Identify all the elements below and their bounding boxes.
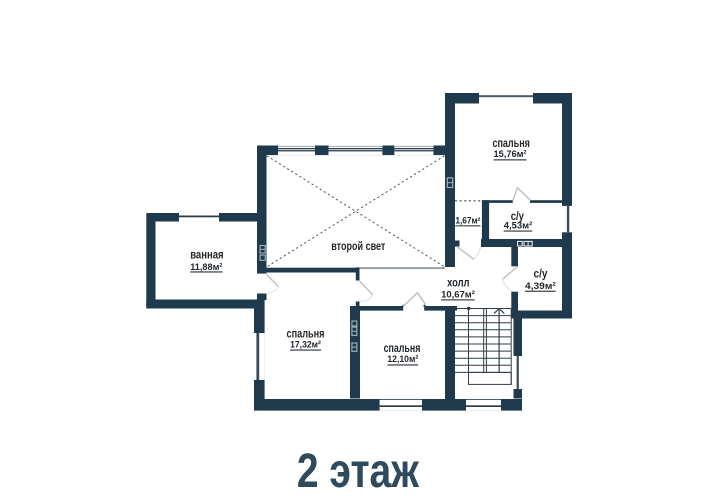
svg-text:спальня: спальня (492, 136, 530, 150)
svg-text:17,32м²: 17,32м² (290, 339, 321, 350)
svg-text:12,10м²: 12,10м² (387, 354, 418, 365)
svg-text:10,67м²: 10,67м² (441, 290, 475, 301)
svg-text:второй свет: второй свет (331, 239, 385, 253)
svg-text:спальня: спальня (384, 341, 421, 355)
svg-text:4,39м²: 4,39м² (525, 281, 556, 292)
svg-text:15,76м²: 15,76м² (494, 149, 527, 160)
svg-text:4,53м²: 4,53м² (504, 221, 533, 232)
svg-text:ванная: ванная (190, 248, 223, 262)
svg-text:1,67м²: 1,67м² (455, 216, 480, 226)
svg-text:с/у: с/у (534, 269, 549, 281)
svg-text:холл: холл (447, 275, 469, 289)
svg-text:2 этаж: 2 этаж (297, 445, 420, 498)
